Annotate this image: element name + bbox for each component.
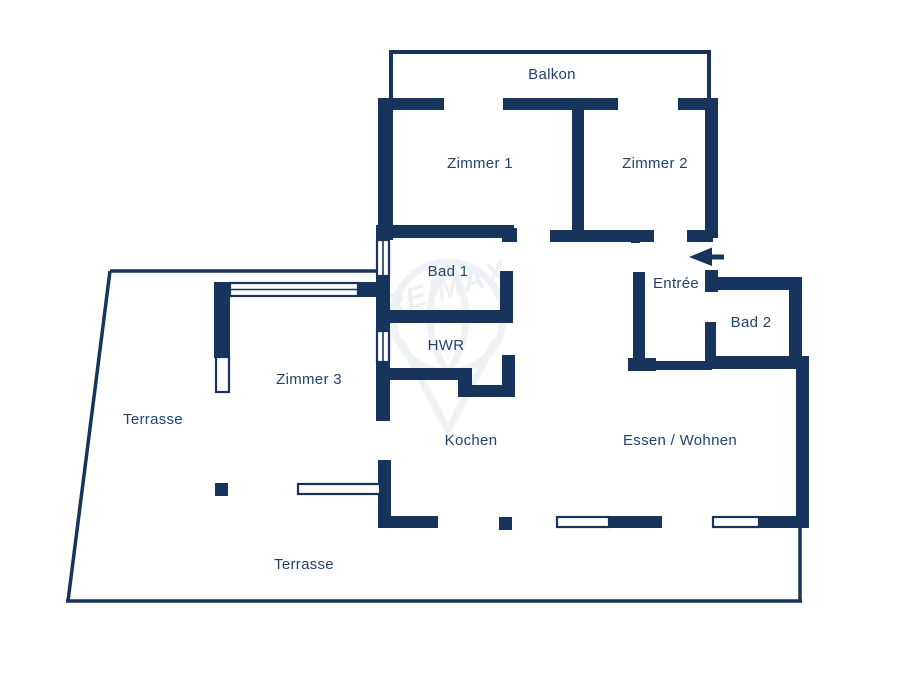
entrance-arrow-icon — [689, 248, 724, 267]
floor-plan-svg: RE/MAX — [0, 0, 920, 693]
room-label-bad1: Bad 1 — [428, 263, 469, 280]
room-label-zimmer1: Zimmer 1 — [447, 155, 513, 172]
room-label-essen-wohnen: Essen / Wohnen — [623, 432, 737, 449]
window-symbol — [557, 517, 609, 527]
window-symbol — [377, 240, 389, 276]
room-label-terrasse-bottom: Terrasse — [274, 556, 334, 573]
room-label-bad2: Bad 2 — [731, 314, 772, 331]
room-label-terrasse-left: Terrasse — [123, 411, 183, 428]
window-symbol — [230, 283, 358, 296]
room-label-balkon: Balkon — [528, 66, 576, 83]
window-symbol — [713, 517, 759, 527]
pillar — [499, 517, 512, 530]
window-symbol — [298, 484, 380, 494]
floor-plan-page: RE/MAX — [0, 0, 920, 693]
room-label-kochen: Kochen — [445, 432, 498, 449]
window-symbol — [216, 357, 229, 392]
room-label-hwr: HWR — [428, 337, 465, 354]
room-label-zimmer3: Zimmer 3 — [276, 371, 342, 388]
room-label-entree: Entrée — [653, 275, 699, 292]
pillar — [215, 483, 228, 496]
window-symbol — [377, 331, 389, 362]
room-label-zimmer2: Zimmer 2 — [622, 155, 688, 172]
